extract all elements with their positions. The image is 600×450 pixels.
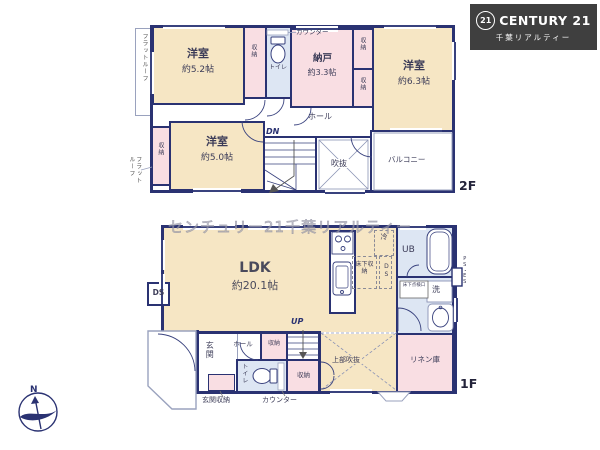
pipe-space-label: PS・ES [461, 256, 467, 285]
room-size: 約3.3帖 [297, 68, 347, 77]
closet-label: 収納 [249, 44, 256, 58]
compass-north-label: N [30, 385, 38, 395]
closet-label: 収納 [261, 341, 287, 348]
window [193, 188, 241, 194]
wall [161, 331, 321, 334]
window [390, 128, 442, 134]
stairs-up-label: UP [291, 317, 303, 326]
counter-label: カウンター [262, 396, 297, 404]
stairs-down-label: DN [266, 127, 279, 136]
toilet-label: トイレ [265, 65, 291, 72]
hall-label: ホール [292, 112, 348, 121]
closet-2f-a [243, 25, 267, 99]
closet-2f-d [150, 126, 171, 186]
linen-label: リネン庫 [402, 356, 448, 365]
floor-plan-page: フラットルーフ 洋室 約5.2帖 収納 トイレ カウンター 納戸 約3.3帖 収… [0, 0, 600, 450]
void-label: 吹抜 [329, 159, 349, 168]
flat-roof-line1: フラット [134, 156, 141, 184]
wall [196, 330, 199, 394]
wall [196, 391, 320, 394]
floor2-label: 2F [459, 179, 476, 193]
compass-icon [19, 393, 57, 431]
ldk-name: LDK [225, 260, 285, 276]
toilet-label: トイレ [240, 363, 247, 384]
century21-logo: 21 CENTURY 21 千葉リアルティー [470, 4, 597, 50]
wall [318, 331, 321, 391]
balcony-label: バルコニー [388, 156, 425, 165]
watermark: センチュリー21千葉リアルティー [168, 216, 478, 237]
flat-roof-label: フラットルーフ [140, 33, 147, 82]
closet-label: 収納 [358, 37, 365, 51]
window [325, 190, 365, 196]
room-size: 約6.3帖 [383, 77, 445, 87]
unit-bath-label: UB [402, 245, 415, 255]
room-name: 洋室 [187, 136, 247, 149]
stairs-2f [263, 136, 317, 193]
room-size: 約5.2帖 [163, 65, 233, 75]
underfloor-storage-label: 床下収納 [354, 262, 375, 276]
genkan-storage-label: 玄関収納 [202, 396, 230, 404]
floor1-label: 1F [460, 377, 477, 391]
room-size: 約5.0帖 [182, 153, 252, 163]
genkan-label: 玄関 [205, 341, 214, 359]
toilet-room-2f [265, 25, 292, 99]
duct-space-label: DS [382, 263, 389, 279]
logo-company: 千葉リアルティー [496, 32, 571, 43]
porch [148, 331, 196, 409]
logo-brand: CENTURY 21 [499, 13, 591, 28]
genkan-storage-box [208, 374, 235, 391]
duct-space-box-label: DS [148, 289, 169, 298]
logo-badge-icon: 21 [476, 11, 495, 30]
room-name: 洋室 [168, 48, 228, 61]
room-name: 納戸 [300, 54, 345, 65]
wash-label: 洗 [432, 285, 440, 294]
underfloor-hatch-label: 床下点検口 [401, 283, 427, 288]
flat-roof-line2: ルーフ [127, 156, 134, 184]
closet-label: 収納 [156, 142, 163, 156]
window [454, 298, 460, 322]
window [163, 23, 225, 29]
counter-label: カウンター [296, 29, 329, 36]
hall-label: ホール [224, 341, 262, 348]
closet-label: 収納 [290, 372, 317, 379]
window [452, 42, 458, 80]
flat-roof-label-2: フラット ルーフ [127, 156, 141, 184]
window [384, 23, 436, 29]
window [330, 389, 372, 395]
room-name: 洋室 [385, 60, 443, 73]
closet-label: 収納 [358, 77, 365, 91]
upper-void-label: 上部吹抜 [330, 356, 362, 364]
window [159, 240, 165, 270]
window [148, 52, 154, 94]
ldk-size: 約20.1帖 [215, 280, 295, 293]
stairs-1f [286, 331, 321, 361]
